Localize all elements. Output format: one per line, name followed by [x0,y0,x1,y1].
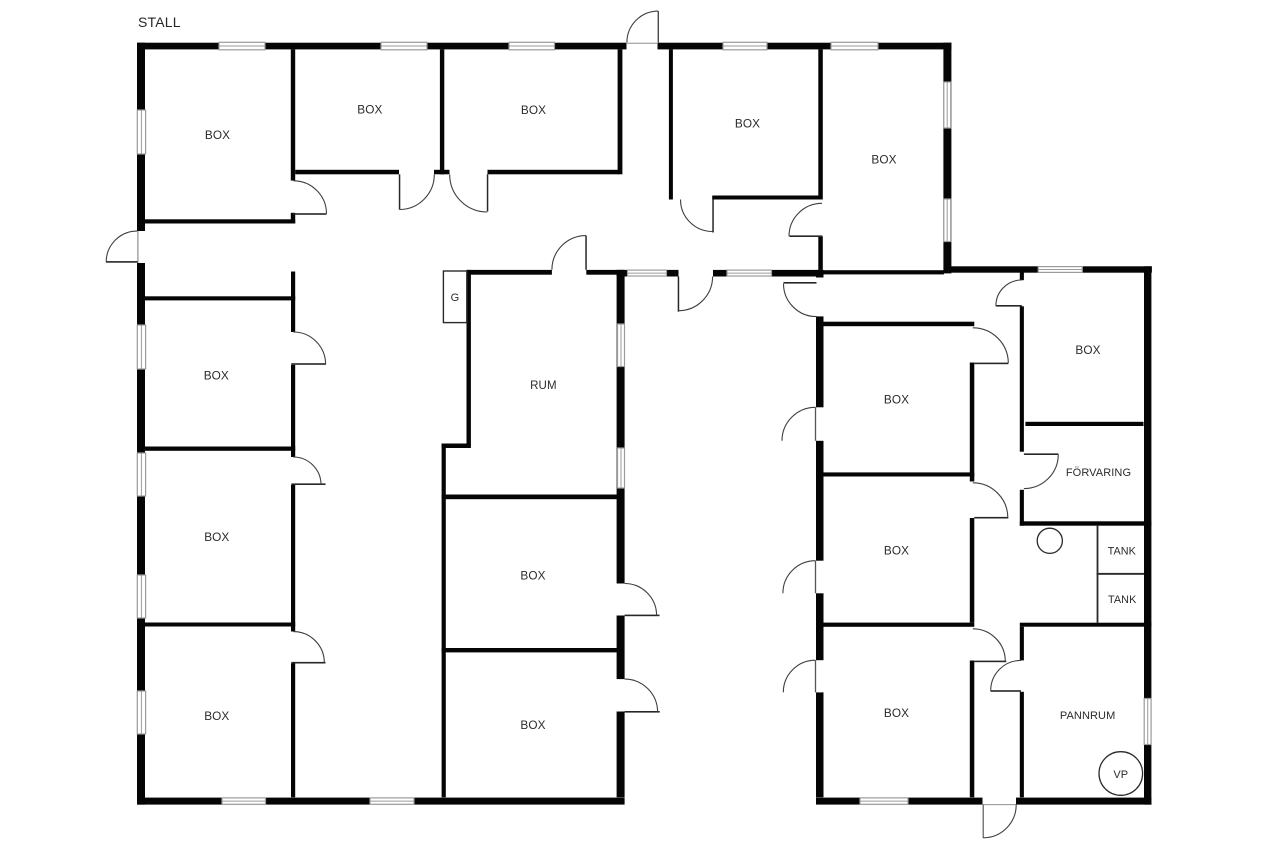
svg-text:BOX: BOX [204,709,229,723]
svg-text:G: G [451,292,460,304]
svg-text:BOX: BOX [204,369,229,383]
svg-text:RUM: RUM [530,380,557,392]
svg-text:VP: VP [1113,769,1128,781]
svg-text:BOX: BOX [1075,343,1100,357]
svg-text:BOX: BOX [520,718,545,732]
svg-text:BOX: BOX [205,128,230,142]
svg-text:BOX: BOX [204,530,229,544]
svg-text:BOX: BOX [357,103,382,117]
svg-text:TANK: TANK [1108,594,1137,606]
svg-text:BOX: BOX [520,569,545,583]
svg-text:BOX: BOX [521,103,546,117]
svg-text:STALL: STALL [138,14,181,30]
svg-text:TANK: TANK [1108,546,1137,558]
svg-text:BOX: BOX [884,706,909,720]
svg-text:FÖRVARING: FÖRVARING [1066,467,1131,479]
svg-text:BOX: BOX [884,544,909,558]
svg-text:PANNRUM: PANNRUM [1060,710,1116,722]
svg-text:BOX: BOX [871,152,896,166]
svg-text:BOX: BOX [735,117,760,131]
svg-text:BOX: BOX [884,393,909,407]
